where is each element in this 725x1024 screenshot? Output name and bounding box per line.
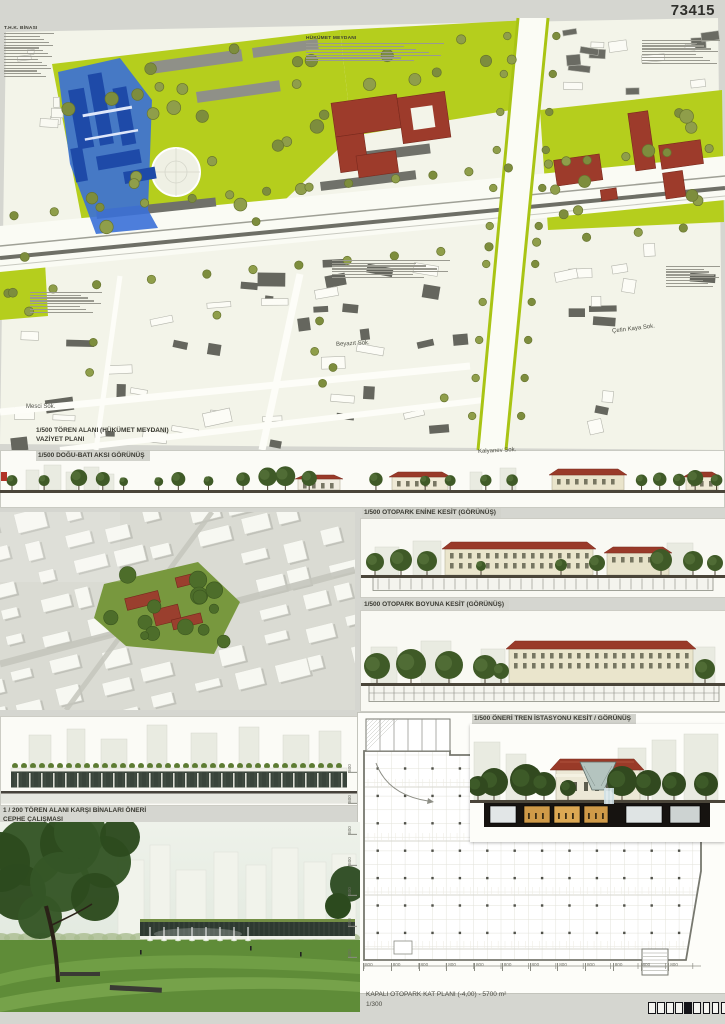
note-block-right-mid [666, 264, 720, 289]
ceremony-plaza [152, 148, 200, 196]
fine-print-lines [30, 292, 102, 313]
train-station-section-drawing [470, 724, 725, 842]
fine-print-lines [306, 43, 444, 61]
parking-bottom-dimensions: 800800800800800800800800800800800800 [363, 963, 696, 971]
facade-caption: 1 / 200 TÖREN ALANI KARŞI BİNALARI ÖNERİ… [3, 806, 146, 824]
otopark-long-section-drawing [360, 610, 725, 712]
caption-line-1: 1/500 TÖREN ALANI (HÜKÜMET MEYDANI) [36, 426, 169, 435]
note-title: T.H.K. BİNASI [4, 26, 54, 31]
dim-label-800: 800 [348, 773, 357, 804]
dim-label-800: 800 [668, 963, 696, 971]
page-square [721, 1002, 725, 1014]
board-pagination [648, 1002, 725, 1014]
dim-label-800: 800 [474, 963, 502, 971]
dim-label-800: 800 [348, 835, 357, 866]
page-square [675, 1002, 683, 1014]
caption-line-1: 1 / 200 TÖREN ALANI KARŞI BİNALARI ÖNERİ [3, 806, 146, 815]
note-block-center [332, 258, 450, 280]
dim-label-800: 800 [348, 865, 357, 896]
note-block-right-top [642, 38, 720, 66]
dim-label-800: 800 [446, 963, 474, 971]
page-square [666, 1002, 674, 1014]
train-station-caption: 1/500 ÖNERİ TREN İSTASYONU KESİT / GÖRÜN… [472, 714, 636, 724]
page-square [648, 1002, 656, 1014]
otopark-boyuna-caption: 1/500 OTOPARK BOYUNA KESİT (GÖRÜNÜŞ) [362, 600, 509, 610]
site-plan-drawing [0, 14, 725, 450]
caption-line-2: CEPHE ÇALIŞMASI [3, 815, 146, 824]
caption-line-2: VAZİYET PLANI [36, 435, 169, 444]
dim-label-800: 800 [348, 896, 357, 927]
dim-label-800: 800 [613, 963, 641, 971]
park-render-image [0, 822, 360, 1012]
panorama-caption: 1/500 DOĞU-BATI AKSI GÖRÜNÜŞ [36, 451, 150, 461]
dim-label-800: 800 [641, 963, 669, 971]
dim-label-800: 800 [502, 963, 530, 971]
dim-label-800: 800 [557, 963, 585, 971]
facade-study-drawing [0, 716, 359, 806]
dim-label-800: 800 [585, 963, 613, 971]
fine-print-lines [642, 40, 720, 64]
site-plan-caption: 1/500 TÖREN ALANI (HÜKÜMET MEYDANI) VAZİ… [36, 426, 169, 444]
dim-label-800: 800 [348, 742, 357, 773]
page-square [693, 1002, 701, 1014]
fine-print-lines [332, 260, 450, 278]
note-block-thk: T.H.K. BİNASI [4, 26, 54, 79]
note-title: HÜKÜMET MEYDANI [306, 36, 444, 41]
page-square [703, 1002, 711, 1014]
street-label-mesci: Mesci Sok. [26, 404, 55, 410]
page-square-active [684, 1002, 692, 1014]
parking-plan-title: KAPALI OTOPARK KAT PLANI (-4,00) - 5700 … [366, 990, 506, 1000]
fine-print-lines [4, 33, 54, 77]
dim-label-800: 800 [530, 963, 558, 971]
dim-label-800: 800 [348, 804, 357, 835]
aerial-render-image [0, 512, 355, 710]
panorama-elevation-drawing [0, 458, 725, 504]
note-block-left [30, 290, 102, 315]
note-block-hukumet: HÜKÜMET MEYDANI [306, 36, 444, 63]
competition-board: 73415 [0, 0, 725, 1024]
dim-label-800: 800 [419, 963, 447, 971]
page-square [712, 1002, 720, 1014]
dim-label-800: 800 [348, 927, 357, 958]
fine-print-lines [666, 266, 720, 287]
parking-left-dimensions: 800800800800800800800 [348, 742, 357, 958]
dim-label-800: 800 [363, 963, 391, 971]
dim-label-800: 800 [391, 963, 419, 971]
parking-plan-scale: 1/300 [366, 1000, 506, 1010]
parking-plan-caption: KAPALI OTOPARK KAT PLANI (-4,00) - 5700 … [366, 990, 506, 1010]
page-square [657, 1002, 665, 1014]
otopark-enine-caption: 1/500 OTOPARK ENİNE KESİT (GÖRÜNÜŞ) [362, 508, 501, 518]
otopark-cross-section-drawing [360, 518, 725, 598]
